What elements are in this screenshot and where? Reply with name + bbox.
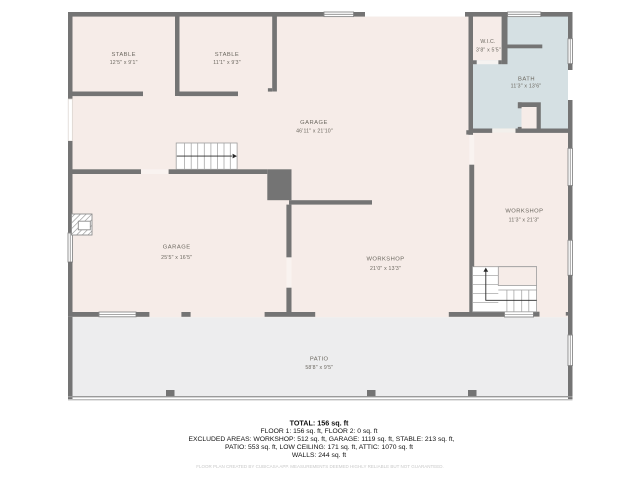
svg-text:3'8" x 5'5": 3'8" x 5'5" bbox=[476, 47, 501, 53]
svg-text:WORKSHOP: WORKSHOP bbox=[505, 208, 543, 214]
svg-text:46'11" x 21'10": 46'11" x 21'10" bbox=[296, 128, 333, 134]
svg-text:TOTAL: 156 sq. ft: TOTAL: 156 sq. ft bbox=[290, 419, 349, 428]
svg-text:11'3" x 21'3": 11'3" x 21'3" bbox=[509, 218, 540, 224]
svg-text:PATIO: 553 sq. ft, LOW CEILING: PATIO: 553 sq. ft, LOW CEILING: 171 sq. … bbox=[225, 444, 413, 451]
svg-text:GARAGE: GARAGE bbox=[163, 245, 191, 251]
svg-text:12'5" x 9'1": 12'5" x 9'1" bbox=[110, 60, 138, 66]
svg-text:WALLS: 244 sq. ft: WALLS: 244 sq. ft bbox=[292, 452, 346, 459]
svg-text:STABLE: STABLE bbox=[111, 52, 136, 58]
svg-text:W.I.C.: W.I.C. bbox=[480, 39, 495, 45]
svg-text:EXCLUDED AREAS: WORKSHOP: 512: EXCLUDED AREAS: WORKSHOP: 512 sq. ft, GA… bbox=[189, 436, 455, 443]
svg-text:BATH: BATH bbox=[518, 76, 535, 82]
svg-text:FLOOR PLAN CREATED BY CUBICASA: FLOOR PLAN CREATED BY CUBICASA APP. MEAS… bbox=[196, 464, 443, 469]
svg-text:58'8" x 9'5": 58'8" x 9'5" bbox=[305, 365, 333, 371]
svg-text:11'1" x 9'3": 11'1" x 9'3" bbox=[213, 60, 241, 66]
svg-text:STABLE: STABLE bbox=[215, 52, 240, 58]
svg-text:11'3" x 13'6": 11'3" x 13'6" bbox=[511, 84, 542, 90]
svg-text:PATIO: PATIO bbox=[310, 357, 329, 363]
svg-text:GARAGE: GARAGE bbox=[300, 120, 328, 126]
svg-text:25'5" x 16'5": 25'5" x 16'5" bbox=[161, 255, 192, 261]
svg-text:WORKSHOP: WORKSHOP bbox=[366, 257, 404, 263]
svg-text:21'0" x 13'3": 21'0" x 13'3" bbox=[370, 266, 401, 272]
svg-text:FLOOR 1: 156 sq. ft, FLOOR 2:: FLOOR 1: 156 sq. ft, FLOOR 2: 0 sq. ft bbox=[260, 428, 377, 435]
